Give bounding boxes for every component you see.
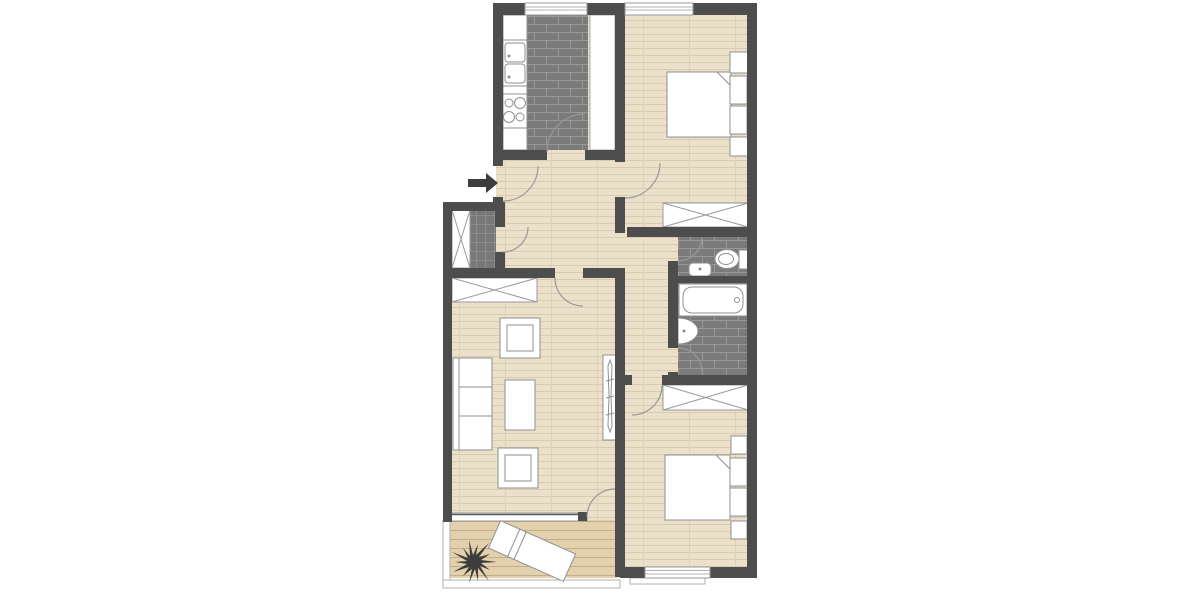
wall-storage-right-upper: [495, 202, 505, 227]
balcony-railing-left: [443, 520, 450, 586]
floor-plan-svg: [0, 0, 1200, 600]
coffee-table: [505, 380, 535, 430]
wall-bedroom2-bottom-left: [620, 567, 645, 578]
wall-bedroom2-top-right: [662, 375, 757, 385]
wall-bedroom1-left-lower: [615, 197, 625, 233]
wall-right-exterior: [747, 3, 757, 578]
bathtub: [679, 284, 747, 316]
kitchen-stove: [503, 94, 527, 128]
wall-storage-right-lower: [495, 252, 505, 270]
floor-plan: [0, 0, 1200, 600]
kitchen-window: [525, 3, 587, 15]
armchair-bottom: [498, 448, 538, 488]
wall-kitchen-left: [493, 3, 503, 166]
bedroom1-nightstand-bottom: [730, 137, 748, 156]
bedroom2-furniture: [663, 385, 748, 539]
wall-living-top-left: [495, 268, 555, 278]
tv-sideboard: [603, 355, 617, 440]
bedroom2-wardrobe: [663, 385, 748, 410]
bedroom2-nightstand-top: [731, 436, 747, 454]
wall-kitchen-bottom-left: [493, 150, 547, 160]
wall-bedroom1-bottom: [627, 227, 757, 237]
bedroom2-window: [645, 567, 710, 578]
wall-left-exterior: [443, 202, 452, 522]
wall-hall-living: [615, 268, 625, 577]
wall-bedroom2-bottom-right: [710, 567, 757, 578]
balcony-glass-front: [450, 513, 587, 521]
wall-bath-left-middle: [668, 261, 678, 348]
symbols: [468, 173, 498, 193]
wall-balcony-door-post: [578, 512, 587, 521]
storage-furniture: [452, 210, 470, 268]
wall-wc-bath-divider: [668, 276, 748, 283]
bedroom1-nightstand-top: [730, 52, 748, 73]
bedroom1-wardrobe: [663, 203, 748, 227]
entrance-arrow-icon: [468, 173, 498, 193]
installation-shaft: [590, 15, 615, 150]
kitchen-fixtures: [503, 15, 527, 150]
bedroom2-bed: [665, 455, 747, 520]
bedroom1-window: [625, 3, 693, 15]
storage-wardrobe: [452, 210, 470, 268]
wall-bedroom2-top-left: [615, 375, 632, 385]
living-wardrobe: [452, 278, 537, 302]
toilet: [715, 250, 748, 270]
sofa: [453, 358, 492, 450]
armchair-top: [500, 318, 540, 358]
bedroom2-nightstand-bottom: [731, 521, 747, 539]
wc-hand-basin: [689, 263, 711, 276]
wall-bedroom1-left: [615, 3, 625, 162]
bedroom2-window-sill: [630, 578, 705, 584]
bedroom1-bed: [667, 72, 747, 137]
kitchen-sink-unit: [503, 40, 527, 86]
